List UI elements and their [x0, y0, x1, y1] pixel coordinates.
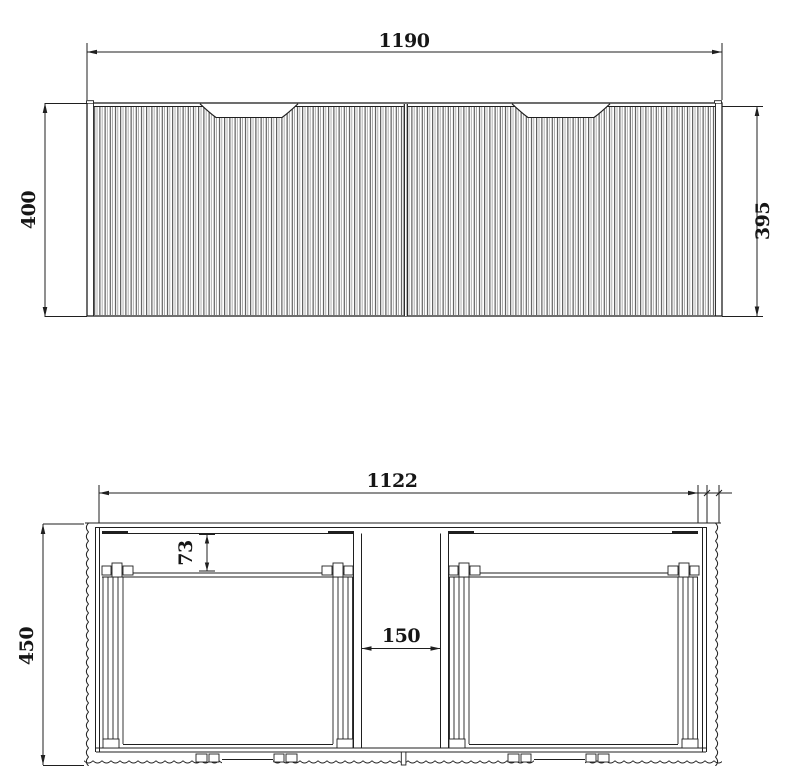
fluted-edge-left [84, 523, 90, 766]
dim-center-gap-label: 150 [382, 625, 420, 647]
dim-plan-depth-label: 450 [16, 627, 38, 665]
vanity-technical-drawing: 1190 400 395 [0, 0, 800, 784]
drawing-sheet: 1190 400 395 [0, 0, 800, 784]
front-divider-joint [401, 752, 406, 765]
dim-front-height-right-label: 395 [752, 202, 774, 240]
fluted-edge-right [714, 523, 720, 766]
dim-front-width-label: 1190 [379, 30, 430, 52]
dim-front-height-left-label: 400 [18, 191, 40, 229]
handle-notch-right-fill [512, 104, 610, 118]
handle-notch-left-fill [200, 104, 298, 118]
dim-back-offset-label: 73 [175, 540, 197, 565]
dim-plan-width-label: 1122 [367, 470, 418, 492]
